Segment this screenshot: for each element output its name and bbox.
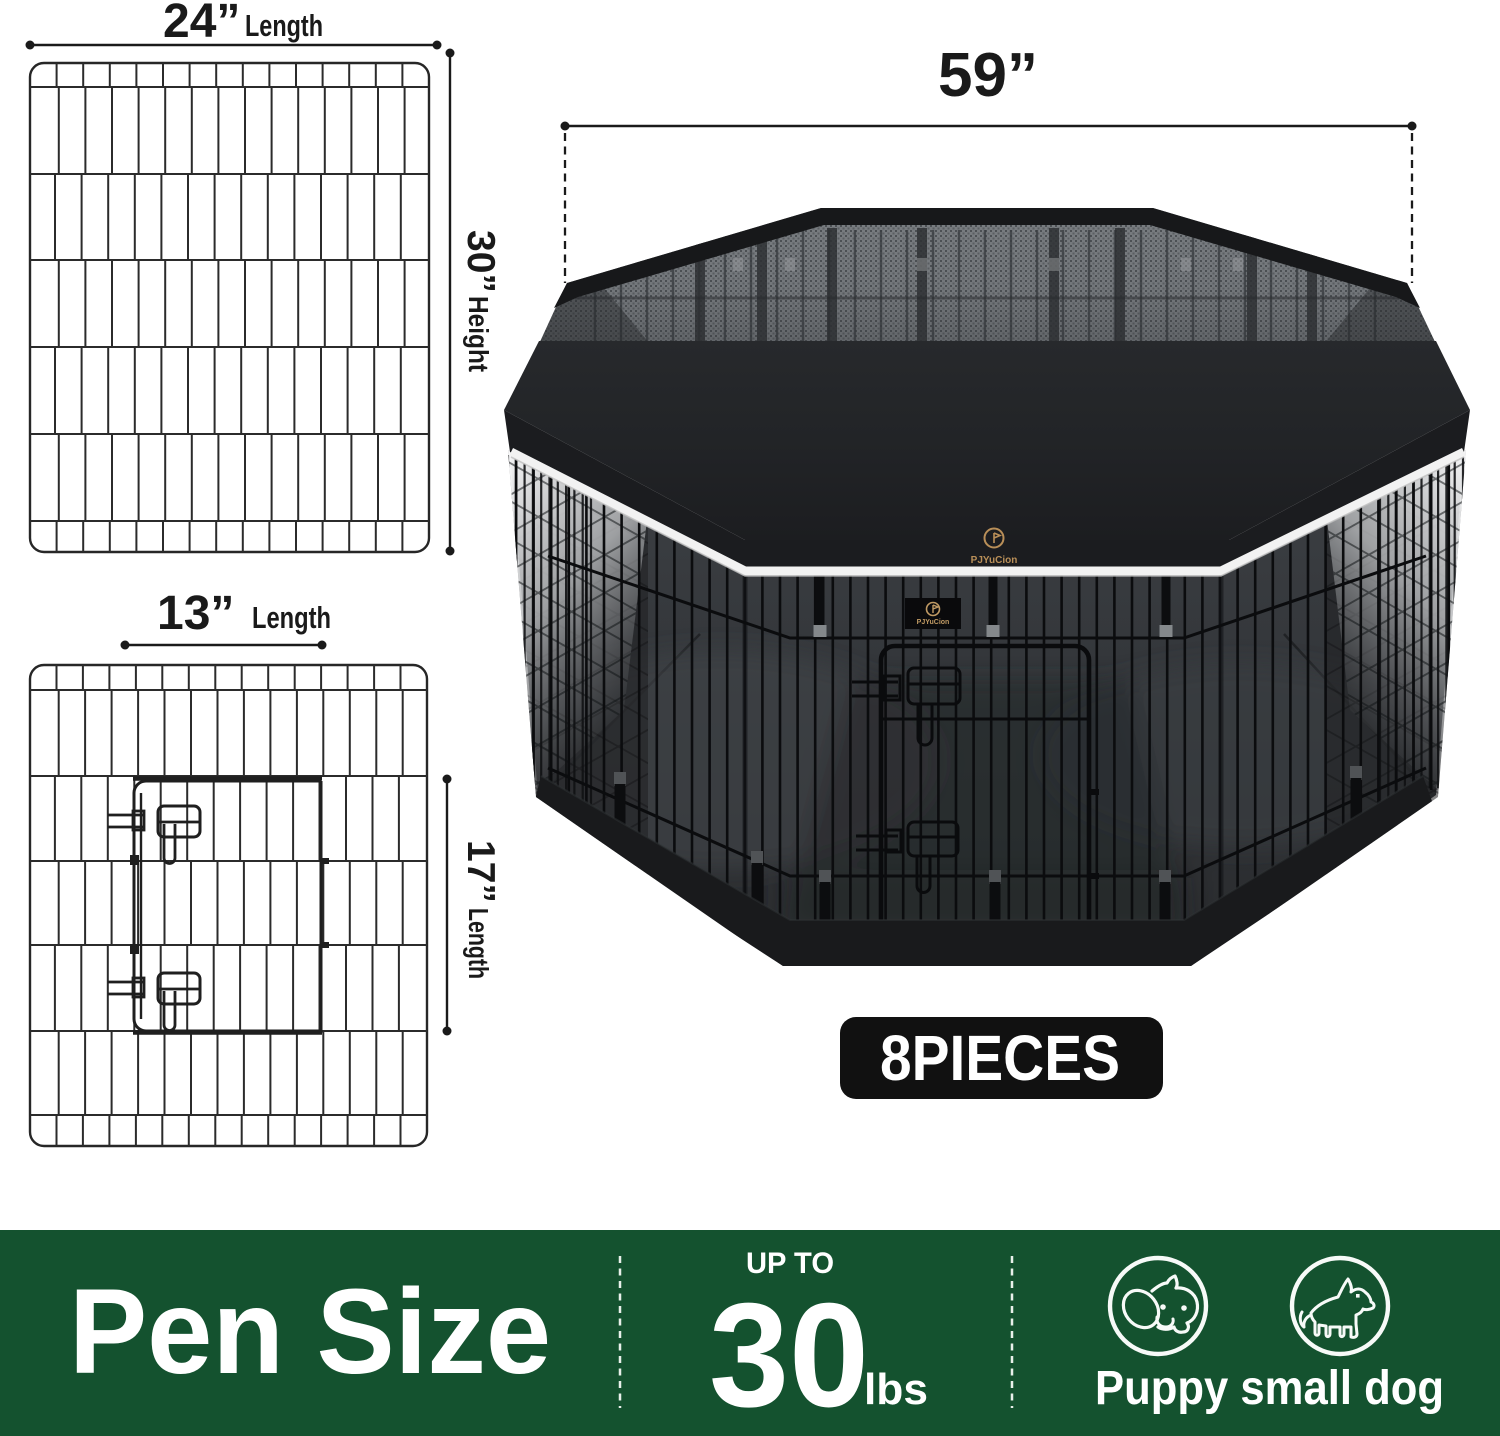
svg-text:17”: 17”: [459, 840, 502, 903]
svg-text:Height: Height: [463, 296, 494, 372]
svg-text:Length: Length: [463, 908, 494, 979]
svg-text:30”: 30”: [459, 230, 502, 293]
svg-text:59”: 59”: [938, 41, 1038, 110]
svg-text:13”: 13”: [157, 587, 234, 640]
svg-text:24”: 24”: [163, 0, 240, 48]
svg-text:Puppy small dog: Puppy small dog: [1095, 1362, 1444, 1415]
svg-text:lbs: lbs: [864, 1365, 928, 1414]
svg-text:Length: Length: [252, 600, 331, 635]
svg-text:30: 30: [709, 1273, 869, 1436]
svg-text:PJYuCion: PJYuCion: [971, 555, 1018, 566]
svg-text:Pen Size: Pen Size: [69, 1263, 551, 1399]
svg-text:8PIECES: 8PIECES: [880, 1022, 1120, 1094]
svg-text:PJYuCion: PJYuCion: [917, 619, 950, 626]
svg-text:Length: Length: [245, 8, 323, 43]
